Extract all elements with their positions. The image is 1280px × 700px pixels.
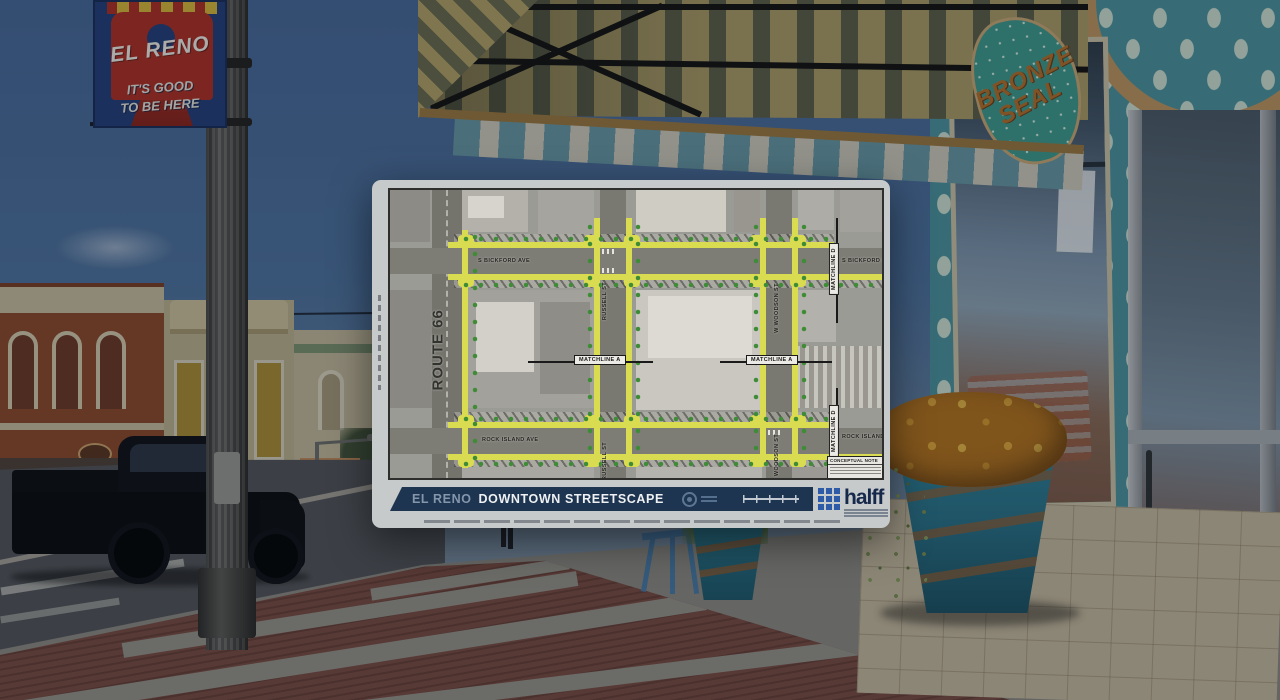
crosswalk-marking — [602, 249, 616, 254]
map-label-russell: RUSSELL ST — [602, 282, 608, 320]
graphic-scale-bar — [743, 498, 799, 500]
city-seal-icon — [682, 492, 697, 507]
map-building — [390, 190, 430, 242]
plot-stamp — [378, 295, 381, 390]
map-building — [636, 190, 726, 232]
tree-row — [460, 459, 884, 470]
truck-wheel — [108, 522, 170, 584]
tree-row — [460, 280, 884, 291]
arched-window — [96, 331, 126, 409]
sidewalk-highlight — [462, 230, 468, 468]
street-photo-scene: BRONZE SEAL — [0, 0, 1280, 700]
planter-band — [690, 560, 766, 579]
pedestrian-leg — [501, 525, 506, 547]
tree-row — [633, 220, 644, 460]
sheet-title-text: DOWNTOWN STREETSCAPE — [479, 492, 682, 506]
door-handle — [1146, 450, 1152, 510]
map-label-bickford: S BICKFORD AVE — [478, 258, 530, 264]
building-cornice — [0, 283, 164, 313]
chair-leg — [641, 534, 656, 592]
map-label-russell: RUSSELL ST — [602, 442, 608, 480]
crosswalk-line — [0, 598, 120, 624]
el-reno-banner: EL RENO IT'S GOOD TO BE HERE — [93, 0, 227, 128]
pedestrian-leg — [508, 527, 513, 549]
map-building — [476, 302, 534, 372]
map-building — [540, 302, 590, 394]
map-label-rock-island: ROCK ISLAND AVE — [482, 437, 538, 443]
tree-row — [585, 220, 596, 460]
tree-row — [799, 220, 810, 460]
halff-squares-icon — [818, 488, 840, 510]
seal-caption — [701, 496, 717, 502]
map-building — [840, 190, 884, 232]
matchline-label: MATCHLINE D — [829, 405, 839, 457]
building-trim — [294, 344, 378, 353]
tree-row — [470, 230, 481, 466]
conceptual-note-title: CONCEPTUAL NOTE — [828, 457, 883, 465]
cloud — [55, 225, 175, 270]
black-pickup-truck — [10, 430, 305, 600]
conceptual-note-box: CONCEPTUAL NOTE — [827, 456, 884, 480]
map-building — [468, 196, 504, 218]
map-label-rock-island: ROCK ISLAND AVE — [842, 434, 884, 440]
plan-map: MATCHLINE A MATCHLINE A MATCHLINE D MATC… — [388, 188, 884, 480]
map-label-route-66: ROUTE 66 — [430, 311, 447, 391]
halff-address — [844, 509, 888, 518]
tree-row — [460, 414, 832, 425]
map-label-woodson: WOODSON ST — [774, 434, 780, 476]
map-label-woodson: W WOODSON ST — [774, 283, 780, 333]
matchline-label: MATCHLINE A — [574, 355, 626, 365]
sheet-title-bar: EL RENO DOWNTOWN STREETSCAPE — [390, 487, 813, 511]
tree-row — [751, 220, 762, 460]
truck-wheel — [248, 528, 304, 584]
map-building — [390, 290, 432, 408]
disclaimer-text-line — [424, 520, 844, 523]
matchline-label: MATCHLINE A — [746, 355, 798, 365]
tree-row — [460, 234, 832, 245]
map-building — [648, 296, 752, 358]
sheet-title-city: EL RENO — [412, 492, 472, 506]
building-sill — [0, 423, 164, 430]
pole-base — [198, 568, 256, 638]
map-label-bickford: S BICKFORD AVE — [842, 258, 884, 264]
planter-band — [690, 536, 766, 555]
arched-window — [52, 331, 82, 409]
matchline-label: MATCHLINE D — [829, 243, 839, 295]
streetscape-plan-sheet: MATCHLINE A MATCHLINE A MATCHLINE D MATC… — [372, 180, 890, 528]
crosswalk-marking — [602, 268, 616, 273]
pole-plate — [214, 452, 240, 504]
door-frame — [1128, 430, 1280, 444]
chair-leg — [670, 536, 675, 594]
arched-window — [8, 331, 38, 409]
